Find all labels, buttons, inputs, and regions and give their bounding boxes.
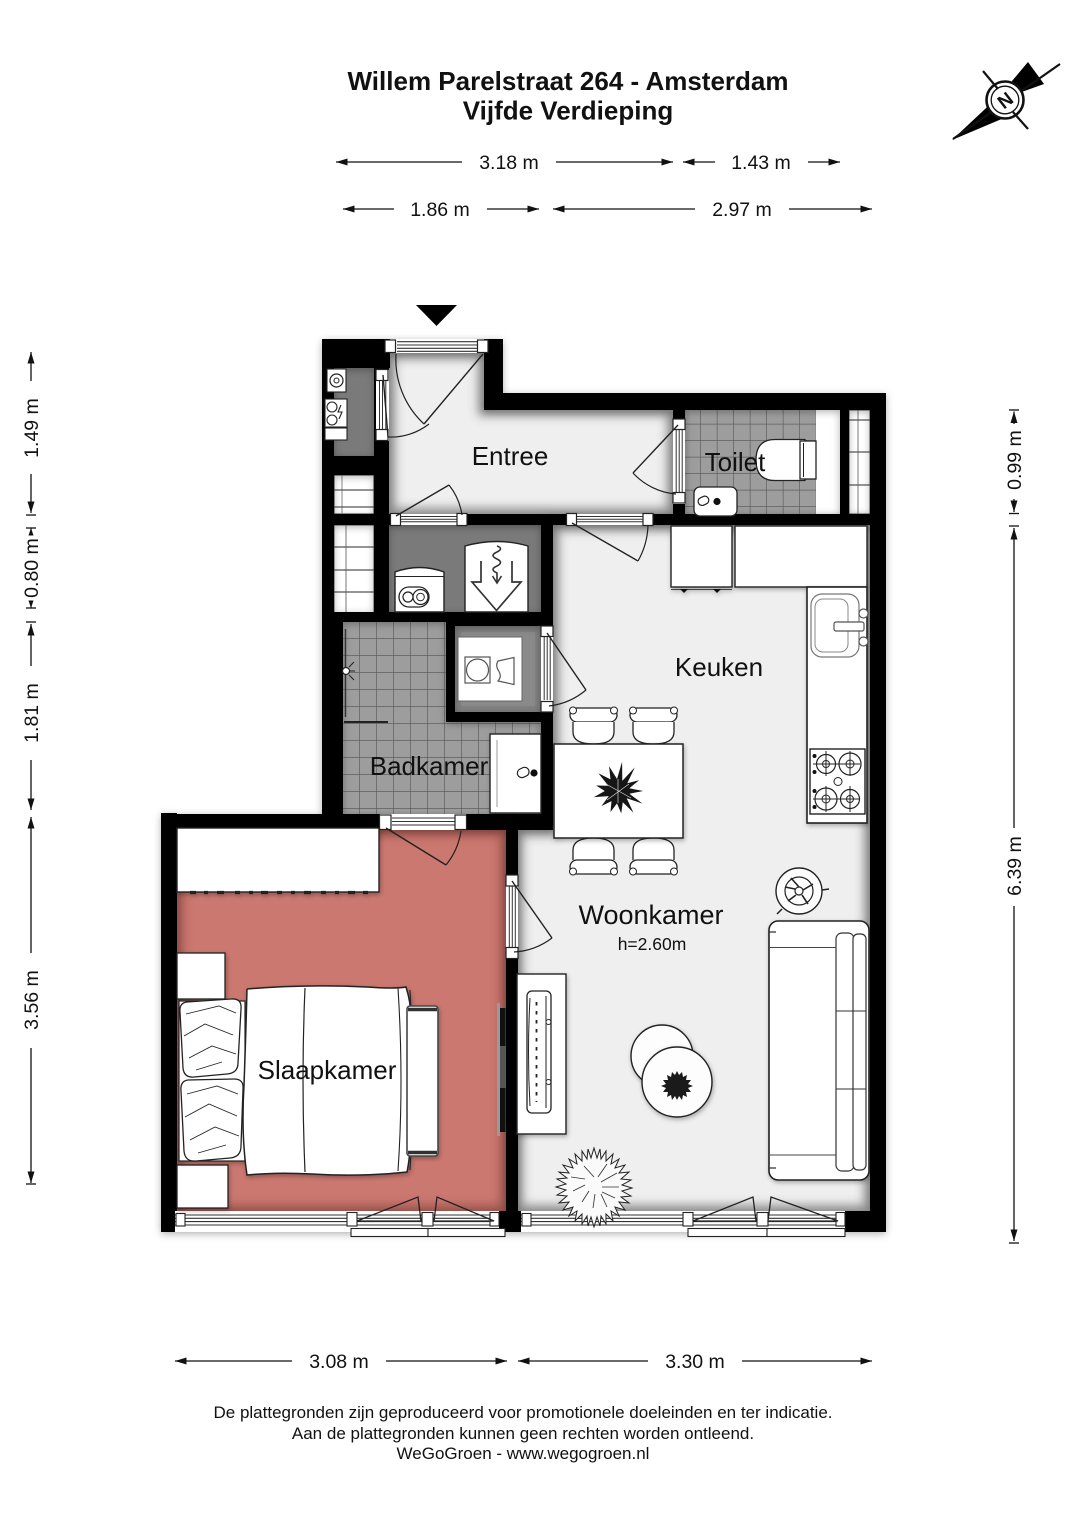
svg-text:3.56 m: 3.56 m [21,970,43,1030]
svg-text:De plattegronden zijn geproduc: De plattegronden zijn geproduceerd voor … [213,1403,832,1422]
svg-text:Vijfde Verdieping: Vijfde Verdieping [463,96,673,126]
svg-text:Woonkamer: Woonkamer [578,900,723,930]
svg-text:Keuken: Keuken [675,652,763,682]
svg-text:Willem Parelstraat 264 - Amste: Willem Parelstraat 264 - Amsterdam [348,66,789,96]
svg-text:1.49 m: 1.49 m [21,398,43,458]
svg-text:2.97 m: 2.97 m [712,199,772,221]
svg-text:WeGoGroen - www.wegogroen.nl: WeGoGroen - www.wegogroen.nl [397,1444,650,1463]
svg-text:6.39 m: 6.39 m [1004,836,1026,896]
svg-text:1.43 m: 1.43 m [731,152,791,174]
svg-text:Toilet: Toilet [705,447,766,477]
svg-text:0.80 m: 0.80 m [21,538,43,598]
svg-text:3.30 m: 3.30 m [665,1351,725,1373]
svg-text:Entree: Entree [472,441,549,471]
svg-text:Slaapkamer: Slaapkamer [258,1055,397,1085]
svg-text:Badkamer: Badkamer [370,751,489,781]
svg-text:3.18 m: 3.18 m [479,152,539,174]
svg-text:h=2.60m: h=2.60m [618,934,687,954]
svg-text:0.99 m: 0.99 m [1004,430,1026,490]
svg-text:1.86 m: 1.86 m [410,199,470,221]
svg-text:Aan de plattegronden kunnen ge: Aan de plattegronden kunnen geen rechten… [292,1424,754,1443]
svg-text:3.08 m: 3.08 m [309,1351,369,1373]
svg-text:1.81 m: 1.81 m [21,683,43,743]
